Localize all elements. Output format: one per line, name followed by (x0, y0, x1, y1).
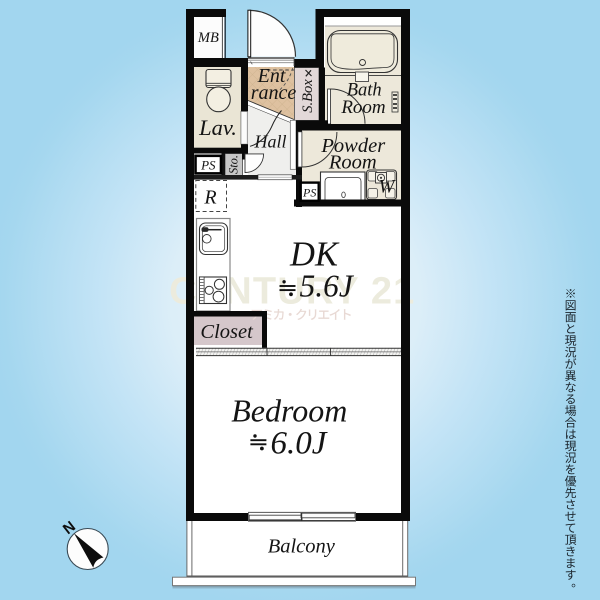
svg-text:Lav.: Lav. (198, 115, 237, 140)
svg-text:MB: MB (197, 30, 219, 46)
svg-text:6.0J: 6.0J (271, 426, 328, 462)
svg-text:Hall: Hall (253, 132, 286, 152)
svg-text:Sto.: Sto. (227, 155, 241, 174)
svg-text:S.Box: S.Box (300, 79, 316, 113)
svg-text:PS: PS (200, 157, 216, 172)
svg-text:Closet: Closet (200, 321, 254, 343)
svg-text:Bedroom: Bedroom (231, 393, 347, 429)
svg-text:W: W (379, 177, 397, 198)
svg-text:rance: rance (251, 82, 297, 104)
svg-text:Room: Room (340, 97, 385, 118)
svg-text:Room: Room (328, 152, 377, 174)
svg-text:PS: PS (302, 186, 316, 200)
svg-text:5.6J: 5.6J (300, 268, 355, 303)
svg-text:Balcony: Balcony (268, 536, 336, 558)
svg-text:R: R (203, 187, 216, 209)
